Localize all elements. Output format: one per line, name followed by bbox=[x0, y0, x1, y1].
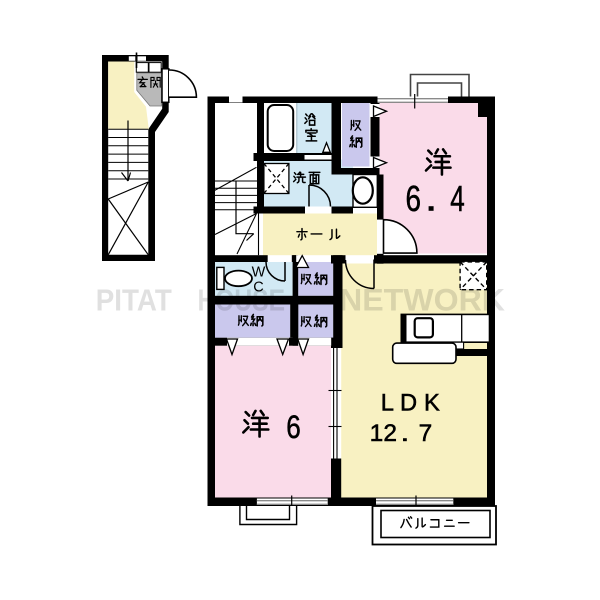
svg-text:D: D bbox=[400, 390, 417, 416]
svg-text:7: 7 bbox=[419, 420, 433, 447]
svg-text:HOUSE: HOUSE bbox=[198, 283, 286, 318]
svg-text:6: 6 bbox=[286, 409, 301, 445]
svg-text:NETWORK: NETWORK bbox=[339, 282, 505, 318]
svg-text:L: L bbox=[381, 390, 394, 416]
svg-text:2: 2 bbox=[383, 420, 397, 447]
svg-text:K: K bbox=[424, 390, 440, 416]
svg-text:1: 1 bbox=[370, 420, 384, 447]
svg-text:4: 4 bbox=[450, 178, 465, 219]
svg-text:W: W bbox=[252, 265, 266, 281]
svg-text:PITAT: PITAT bbox=[96, 283, 172, 318]
svg-text:6: 6 bbox=[406, 178, 422, 219]
